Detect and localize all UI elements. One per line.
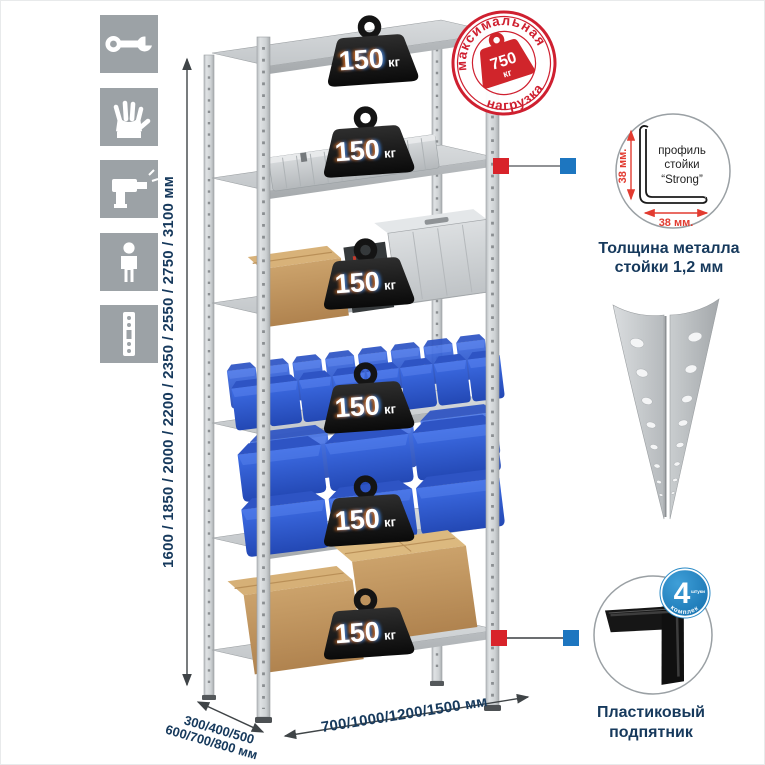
- rear-left-foot: [202, 695, 216, 700]
- profile-caption-line2: стойки 1,2 мм: [615, 259, 724, 276]
- blue-marker: [563, 630, 579, 646]
- shelf-load-value: 150: [334, 390, 381, 423]
- profile-label-1: профиль: [658, 145, 706, 157]
- foot-caption-line1: Пластиковый: [597, 704, 705, 721]
- infographic-canvas: 1600 / 1850 / 2000 / 2200 / 2350 / 2550 …: [1, 1, 765, 765]
- profile-label-2: стойки: [664, 159, 699, 171]
- shelf-load-weight: 150кг: [320, 106, 415, 178]
- badge-count: 4: [674, 577, 691, 610]
- shelf-load-unit: кг: [384, 145, 398, 161]
- rear-right-foot: [430, 681, 444, 686]
- profile-caption-line1: Толщина металла: [598, 240, 739, 257]
- front-left-foot: [255, 717, 272, 723]
- profile-dim-horizontal: 38 мм.: [659, 217, 694, 229]
- height-dimension-label: 1600 / 1850 / 2000 / 2200 / 2350 / 2550 …: [160, 176, 177, 568]
- corner-profile-image: [613, 299, 719, 519]
- shelf-load-value: 150: [334, 616, 381, 649]
- product-infographic: 1600 / 1850 / 2000 / 2200 / 2350 / 2550 …: [0, 0, 765, 765]
- shelf-load-value: 150: [338, 43, 385, 76]
- foot-detail: 4 штуки в комплекте Пластиковый подпятни…: [594, 568, 712, 741]
- foot-callout: [491, 630, 579, 646]
- foot-caption-line2: подпятник: [609, 724, 694, 741]
- shelf-load-unit: кг: [384, 277, 398, 293]
- sidebar: [100, 14, 159, 363]
- shelf-load-value: 150: [334, 134, 381, 167]
- sidebar-tile-rack-post: [100, 305, 158, 363]
- red-marker: [493, 158, 509, 174]
- sidebar-tile-person: [100, 233, 158, 291]
- profile-callout: [493, 158, 576, 174]
- shelf-load-unit: кг: [384, 401, 398, 417]
- red-marker: [491, 630, 507, 646]
- badge-small-text: штуки: [691, 589, 705, 594]
- shelf-load-value: 150: [334, 266, 381, 299]
- profile-label-3: “Strong”: [661, 174, 703, 186]
- profile-dim-vertical: 38 мм.: [617, 149, 629, 184]
- shelf-load-unit: кг: [388, 54, 402, 70]
- shelf-load-unit: кг: [384, 514, 398, 530]
- shelf-load-unit: кг: [384, 627, 398, 643]
- width-dimension-label: 700/1000/1200/1500 мм: [320, 693, 489, 736]
- sidebar-tile-drill: [100, 160, 158, 218]
- height-dimension: 1600 / 1850 / 2000 / 2200 / 2350 / 2550 …: [160, 59, 187, 685]
- max-load-stamp: максимальная нагрузка 750 кг: [440, 1, 569, 127]
- sidebar-tile-gloves: [100, 88, 158, 146]
- rack-post-icon: [123, 312, 135, 356]
- profile-detail: 38 мм. 38 мм. профиль стойки “Strong” То…: [598, 114, 739, 276]
- depth-dimension: 300/400/500 600/700/800 мм: [164, 702, 263, 762]
- included-count-badge: 4 штуки в комплекте: [660, 568, 710, 618]
- sidebar-tile-assembly: [100, 14, 159, 73]
- shelf-load-value: 150: [334, 503, 381, 536]
- blue-marker: [560, 158, 576, 174]
